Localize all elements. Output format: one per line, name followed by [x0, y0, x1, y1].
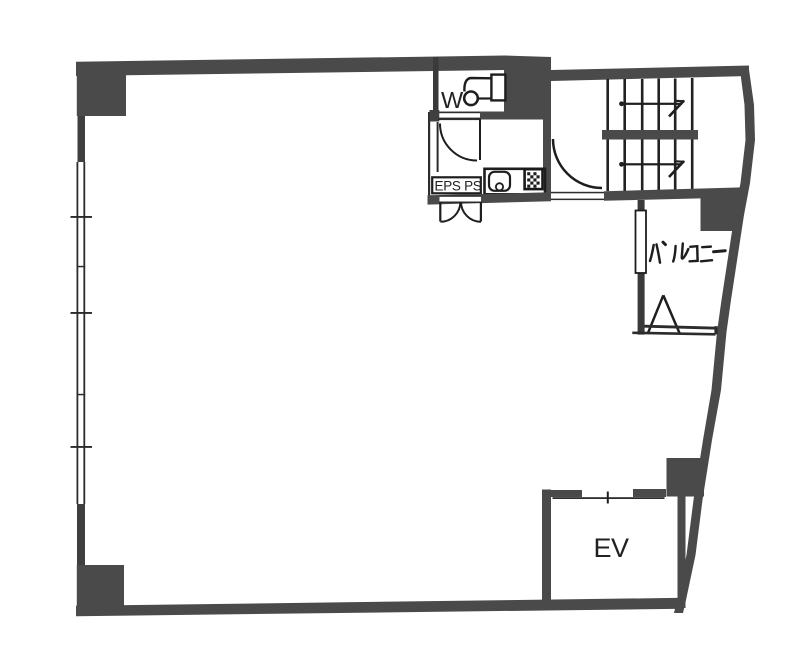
svg-text:EPS PS: EPS PS [435, 179, 482, 194]
svg-text:W: W [441, 87, 464, 113]
svg-text:EV: EV [594, 533, 630, 563]
